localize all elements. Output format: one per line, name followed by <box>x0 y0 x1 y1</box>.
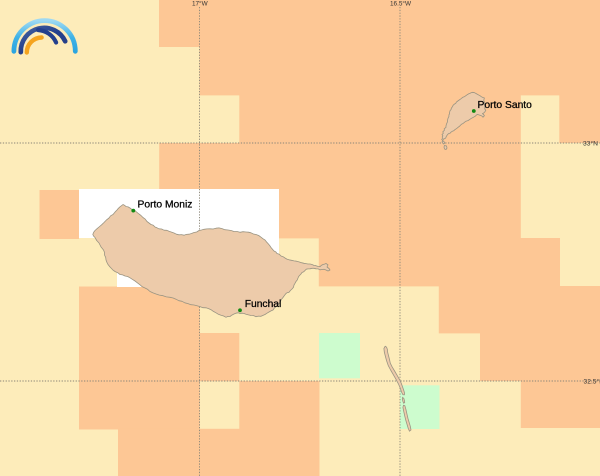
svg-text:Porto Moniz: Porto Moniz <box>138 200 193 211</box>
svg-text:17°W: 17°W <box>192 0 209 7</box>
svg-text:33°N: 33°N <box>583 140 598 148</box>
svg-text:32.5°N: 32.5°N <box>584 377 600 385</box>
svg-text:Funchal: Funchal <box>245 299 282 310</box>
svg-text:16.5°W: 16.5°W <box>390 0 412 7</box>
svg-text:Porto Santo: Porto Santo <box>478 100 533 111</box>
